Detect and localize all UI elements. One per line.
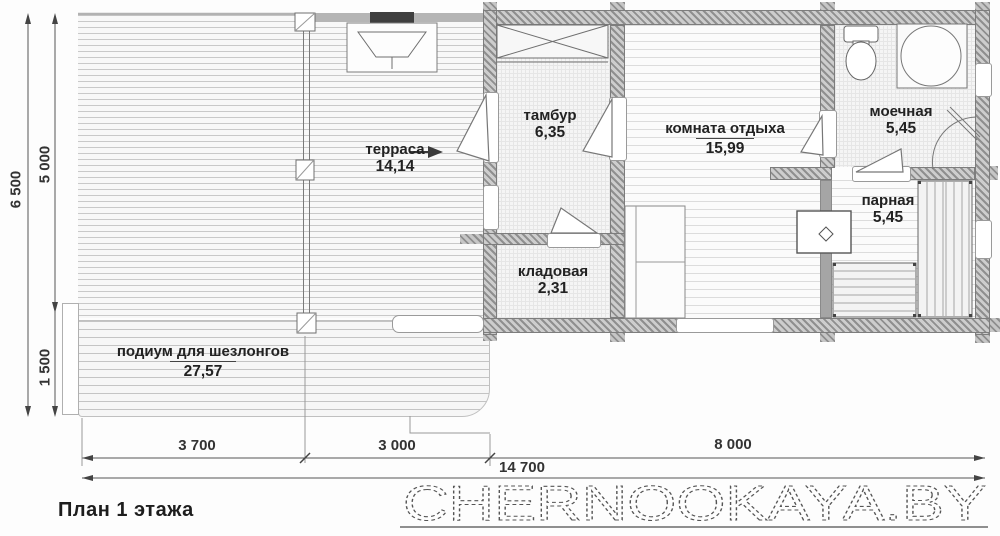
door-swing-tambour-storage (551, 208, 597, 233)
room-area: 5,45 (841, 120, 961, 137)
dim-bottom-porch: 3 000 (347, 437, 447, 454)
room-area: 15,99 (628, 140, 822, 157)
watermark: CHERNOOKAYA.BY (400, 477, 988, 531)
tub-icon (897, 24, 967, 88)
room-area: 6,35 (488, 124, 612, 141)
dim-bottom-total: 14 700 (472, 459, 572, 476)
room-label-washroom: моечная 5,45 (841, 103, 961, 137)
room-name: терраса (320, 141, 470, 158)
dim-bottom-terrace: 3 700 (147, 437, 247, 454)
room-area: 27,57 (71, 363, 335, 380)
room-name: парная (826, 192, 950, 209)
room-label-lounge: комната отдыха 15,99 (628, 120, 822, 157)
room-name: моечная (841, 103, 961, 120)
dim-left-podium: 1 500 (37, 333, 54, 403)
floor-plan-drawing: CHERNOOKAYA.BY терраса 14,14 тамбур 6,35… (0, 0, 1000, 536)
room-area: 2,31 (494, 280, 612, 297)
door-swing-washroom-steamroom (856, 149, 903, 172)
room-label-podium: подиум для шезлонгов 27,57 (71, 343, 335, 380)
room-name: комната отдыха (628, 120, 822, 137)
room-name: тамбур (488, 107, 612, 124)
toilet-icon (844, 26, 878, 80)
room-label-steamroom: парная 5,45 (826, 192, 950, 226)
watermark-text: CHERNOOKAYA.BY (403, 477, 986, 531)
dim-left-total: 6 500 (8, 155, 25, 225)
dim-left-main: 5 000 (37, 130, 54, 200)
terrace-post (295, 13, 316, 333)
room-label-storage: кладовая 2,31 (494, 263, 612, 297)
room-area: 5,45 (826, 209, 950, 226)
room-area: 14,14 (320, 158, 470, 175)
stairs-box-icon (497, 25, 608, 62)
page-title: План 1 этажа (58, 499, 194, 522)
lounge-bench (625, 206, 685, 318)
area-underline (696, 138, 754, 139)
room-label-terrace: терраса 14,14 (320, 141, 470, 175)
room-name: кладовая (494, 263, 612, 280)
room-label-tambour: тамбур 6,35 (488, 107, 612, 141)
steamroom-bench-bottom (833, 263, 916, 317)
room-name: подиум для шезлонгов (71, 343, 335, 360)
area-underline (170, 361, 236, 362)
terrace-roof-edge (78, 13, 483, 22)
dim-bottom-house: 8 000 (683, 436, 783, 453)
